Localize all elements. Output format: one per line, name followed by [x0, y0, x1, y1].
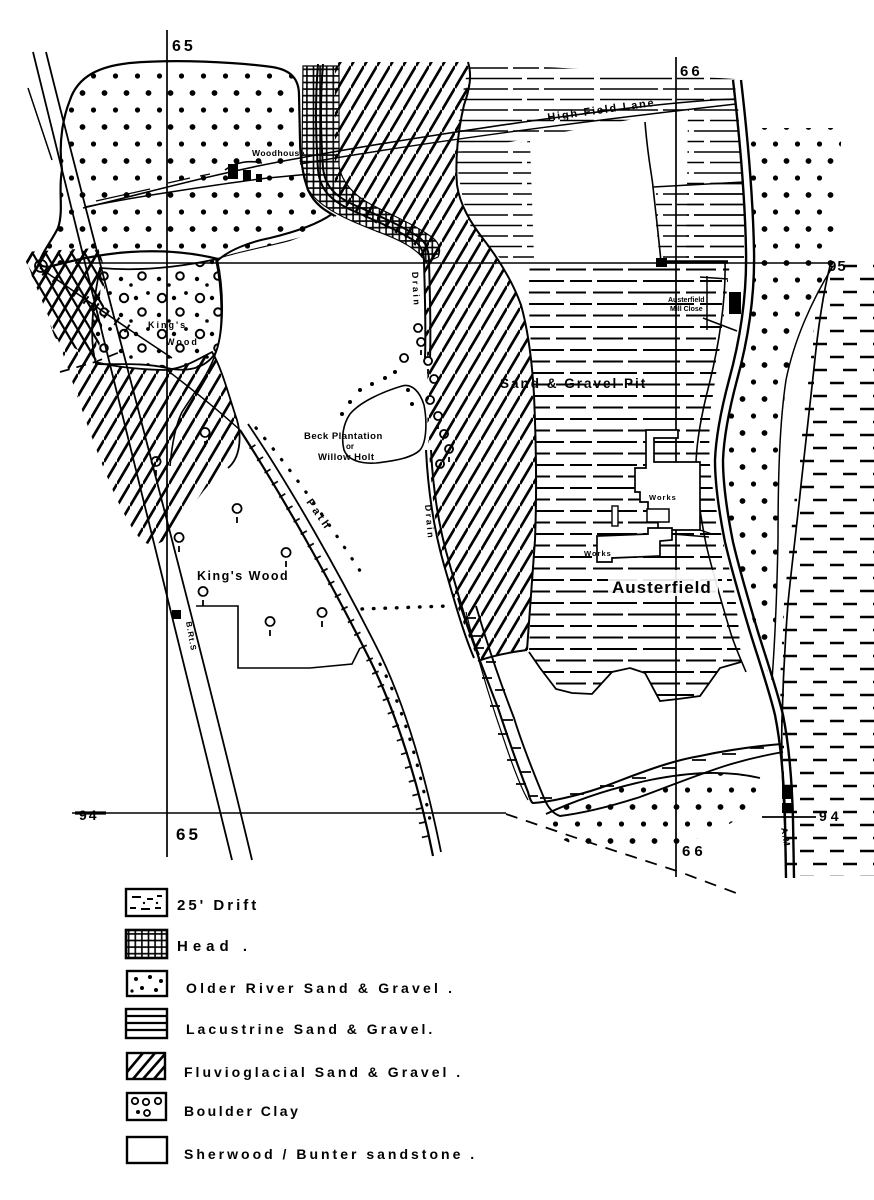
- svg-text:King's: King's: [148, 320, 187, 330]
- svg-text:Head .: Head .: [177, 938, 252, 955]
- svg-text:94: 94: [819, 808, 843, 824]
- svg-text:Sherwood / Bunter sandstone .: Sherwood / Bunter sandstone .: [184, 1146, 477, 1162]
- svg-text:Sand & Gravel Pit: Sand & Gravel Pit: [500, 376, 647, 391]
- svg-text:Lacustrine Sand & Gravel.: Lacustrine Sand & Gravel.: [186, 1021, 435, 1037]
- svg-text:Works: Works: [584, 549, 612, 558]
- svg-text:Willow Holt: Willow Holt: [318, 452, 375, 463]
- svg-text:Works: Works: [649, 493, 677, 502]
- svg-text:or: or: [346, 442, 354, 451]
- svg-text:Older River Sand & Gravel .: Older River Sand & Gravel .: [186, 980, 455, 996]
- svg-text:Fluvioglacial Sand & Gravel .: Fluvioglacial Sand & Gravel .: [184, 1064, 463, 1080]
- svg-text:95: 95: [828, 258, 847, 275]
- svg-text:65: 65: [172, 38, 196, 55]
- svg-text:Drain: Drain: [410, 272, 422, 308]
- svg-text:Austerfield: Austerfield: [668, 297, 705, 304]
- svg-text:Boulder Clay: Boulder Clay: [184, 1103, 300, 1119]
- svg-text:Mill Close: Mill Close: [670, 306, 703, 313]
- svg-text:Austerfield: Austerfield: [612, 578, 712, 597]
- svg-text:66: 66: [682, 843, 707, 860]
- svg-text:King's Wood: King's Wood: [197, 569, 289, 583]
- svg-text:65: 65: [176, 825, 201, 844]
- svg-text:Woodhouse: Woodhouse: [252, 148, 305, 158]
- svg-text:66: 66: [680, 63, 703, 80]
- svg-text:Beck Plantation: Beck Plantation: [304, 431, 383, 442]
- svg-text:94: 94: [79, 807, 99, 823]
- svg-text:Wood: Wood: [166, 337, 199, 347]
- svg-text:25' Drift: 25' Drift: [177, 897, 259, 914]
